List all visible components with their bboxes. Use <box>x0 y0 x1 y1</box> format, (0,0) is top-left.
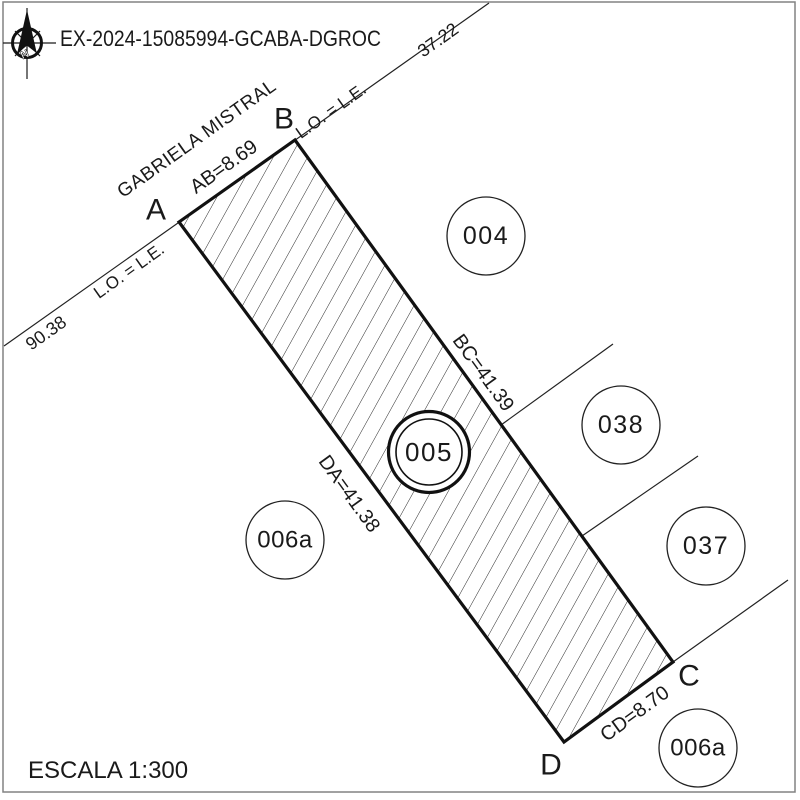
lot-label-037: 037 <box>683 532 729 560</box>
subject-lot-label-005: 005 <box>405 437 453 467</box>
corner-label-a: A <box>146 194 166 227</box>
street-dim-upper: 37.22 <box>414 19 462 61</box>
lot-label-006a-south: 006a <box>670 735 726 762</box>
north-arrow-icon: N <box>3 8 56 79</box>
lot-label-038: 038 <box>598 411 644 439</box>
division-line-037-006a <box>673 580 788 662</box>
cadastral-plan-page: 004 038 037 006a 006a 005 A B C D GABRIE… <box>0 0 800 800</box>
north-letter: N <box>19 48 31 62</box>
lot-label-006a-west: 006a <box>257 527 313 554</box>
alignment-note-upper: L.O. = L.E. <box>292 80 370 143</box>
corner-label-d: D <box>540 749 562 782</box>
plan-drawing: 004 038 037 006a 006a 005 A B C D GABRIE… <box>0 0 800 800</box>
file-number: EX-2024-15085994-GCABA-DGROC <box>60 26 381 51</box>
corner-label-b: B <box>274 103 294 136</box>
lot-label-004: 004 <box>463 222 509 250</box>
scale-label: ESCALA 1:300 <box>28 757 188 784</box>
corner-label-c: C <box>678 660 700 693</box>
street-dim-lower: 90.38 <box>22 312 70 354</box>
alignment-note-lower: L.O. = L.E. <box>90 240 168 303</box>
